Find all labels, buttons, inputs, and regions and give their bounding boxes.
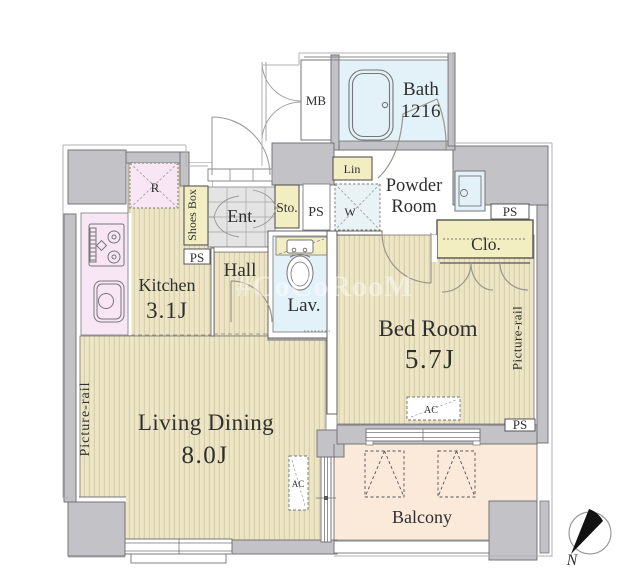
svg-text:Balcony: Balcony	[392, 507, 452, 527]
svg-text:AC: AC	[424, 405, 438, 416]
svg-text:3.1J: 3.1J	[146, 298, 188, 323]
svg-text:W: W	[344, 205, 356, 219]
svg-text:8.0J: 8.0J	[182, 442, 229, 469]
svg-text:PS: PS	[513, 417, 527, 432]
svg-text:Bath: Bath	[403, 79, 439, 100]
svg-text:Shoes Box: Shoes Box	[185, 189, 199, 241]
svg-text:Picture-rail: Picture-rail	[78, 382, 93, 457]
svg-text:Living Dining: Living Dining	[138, 410, 274, 435]
svg-text:PS: PS	[503, 204, 517, 219]
svg-text:Powder: Powder	[386, 176, 443, 196]
svg-text:PS: PS	[308, 205, 324, 220]
svg-text:AC: AC	[292, 479, 305, 489]
svg-text:5.7J: 5.7J	[405, 344, 455, 374]
svg-text:MB: MB	[306, 93, 327, 108]
svg-text:Bed Room: Bed Room	[378, 316, 477, 341]
svg-text:Clo.: Clo.	[471, 234, 501, 254]
svg-text:PS: PS	[190, 250, 204, 265]
svg-text:Lin: Lin	[344, 162, 361, 176]
svg-text:Sto.: Sto.	[276, 200, 297, 215]
svg-text:R: R	[151, 180, 160, 195]
svg-text:Room: Room	[391, 197, 437, 217]
svg-text:Picture-rail: Picture-rail	[510, 306, 525, 370]
svg-text:Kitchen: Kitchen	[139, 275, 196, 295]
svg-text:N: N	[566, 552, 579, 569]
svg-text:1216: 1216	[401, 101, 441, 122]
svg-text:Ent.: Ent.	[227, 206, 257, 226]
svg-text:#CoCoRooM: #CoCoRooM	[236, 270, 413, 303]
